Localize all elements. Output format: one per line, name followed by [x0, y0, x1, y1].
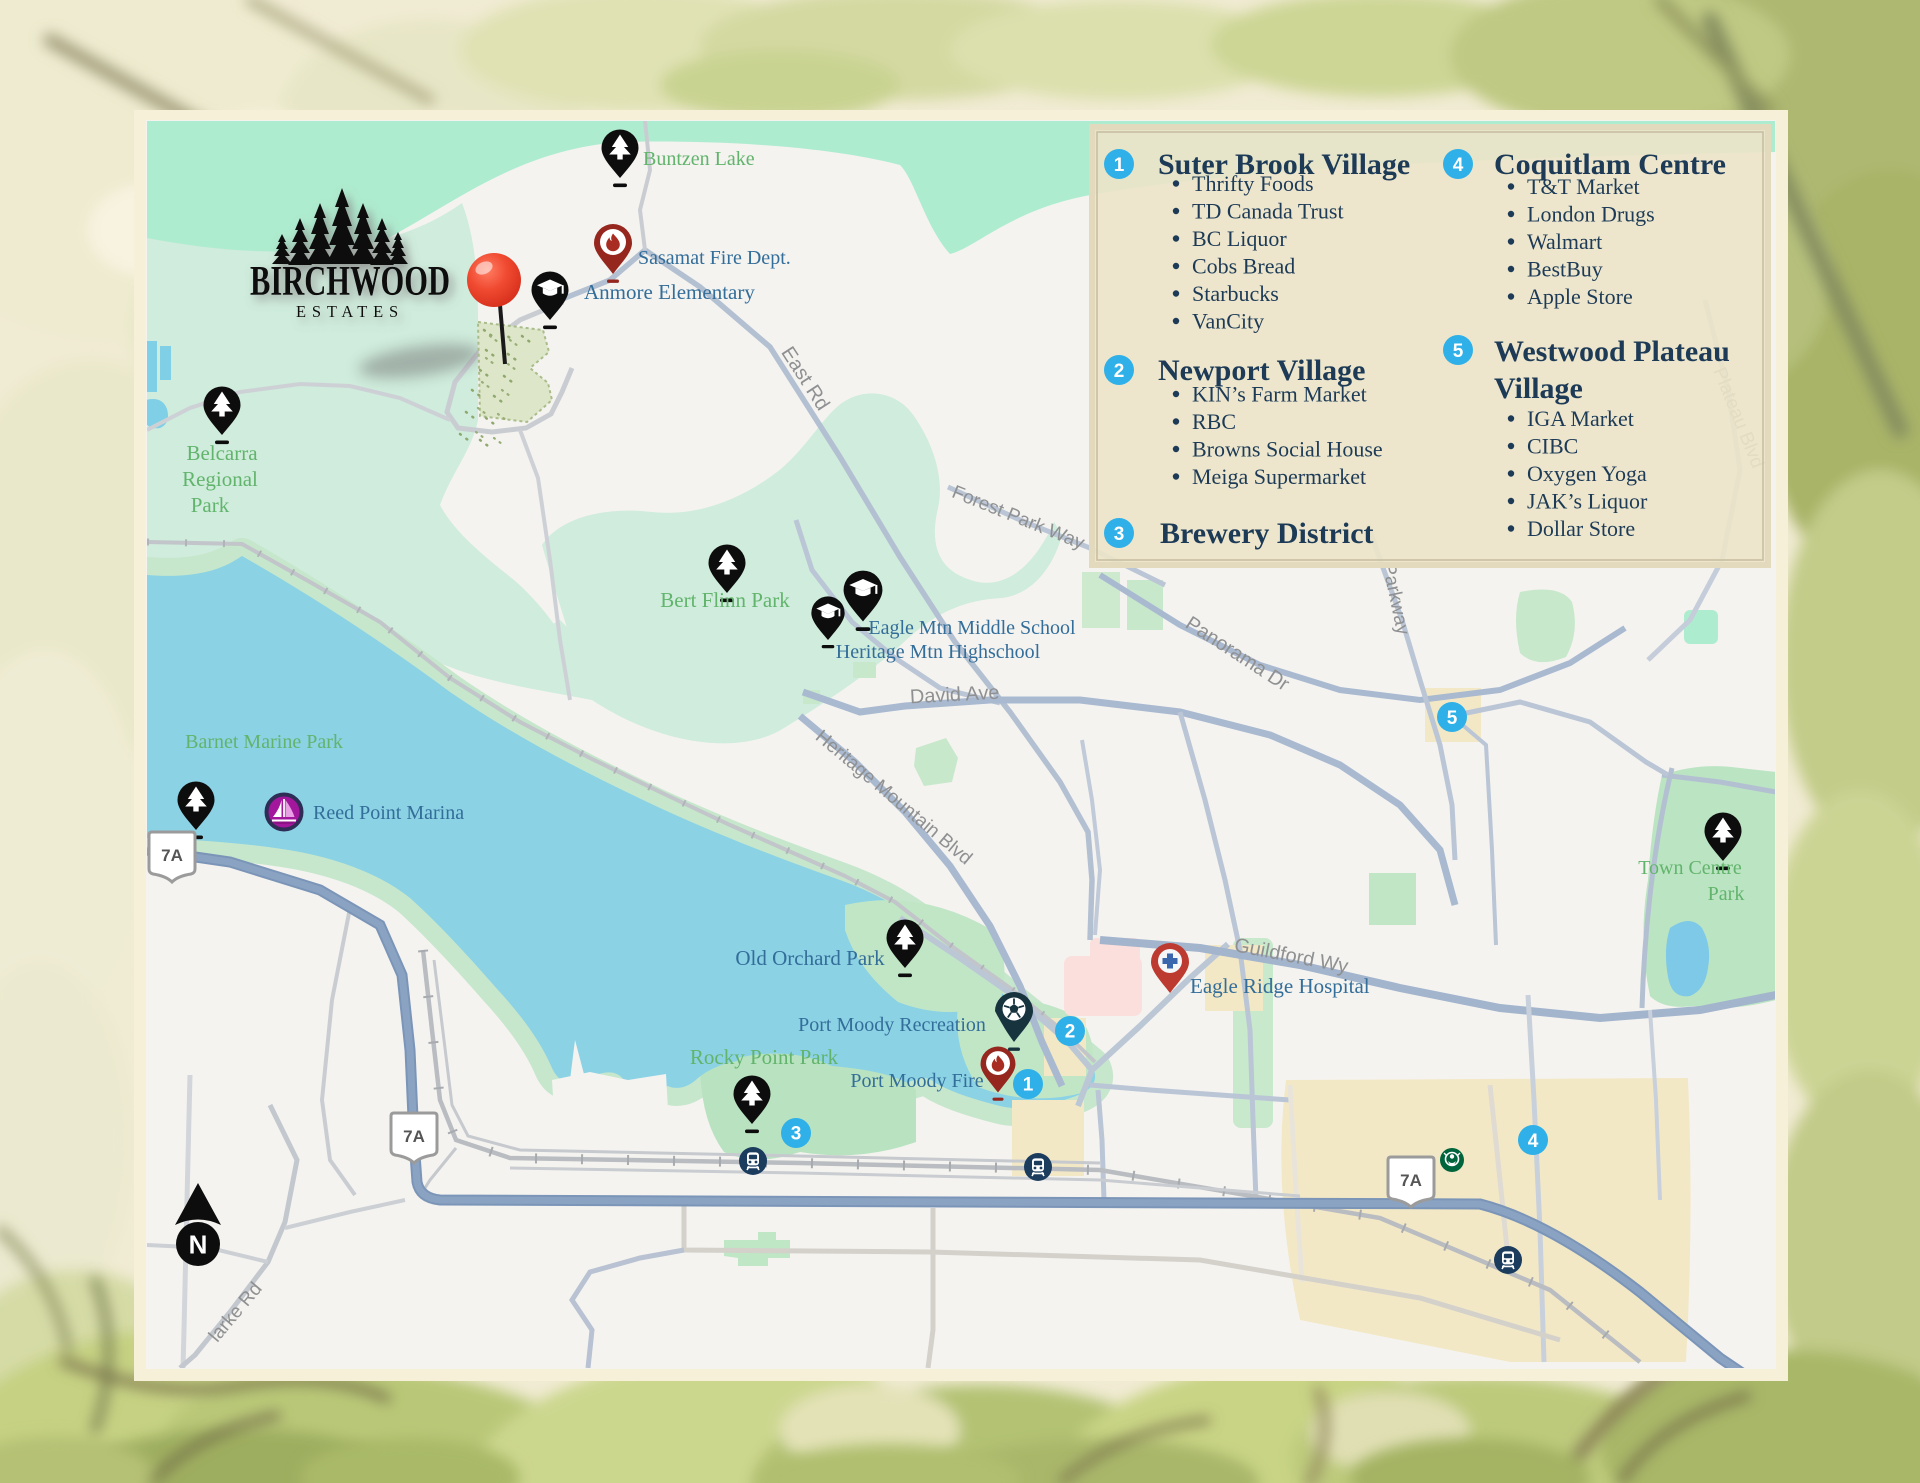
svg-text:JAK’s Liquor: JAK’s Liquor: [1527, 489, 1648, 514]
svg-text:Buntzen Lake: Buntzen Lake: [643, 148, 755, 170]
svg-text:Port Moody Fire: Port Moody Fire: [850, 1070, 983, 1092]
svg-text:3: 3: [1114, 524, 1125, 545]
svg-text:Eagle Ridge Hospital: Eagle Ridge Hospital: [1190, 974, 1370, 998]
svg-text:Meiga Supermarket: Meiga Supermarket: [1192, 464, 1366, 489]
svg-text:ESTATES: ESTATES: [296, 302, 404, 321]
svg-text:BIRCHWOOD: BIRCHWOOD: [250, 259, 450, 305]
svg-text:CIBC: CIBC: [1527, 434, 1578, 459]
svg-text:Bert Flinn Park: Bert Flinn Park: [660, 588, 790, 612]
svg-text:Old Orchard Park: Old Orchard Park: [735, 946, 885, 970]
svg-text:Sasamat Fire Dept.: Sasamat Fire Dept.: [638, 247, 791, 269]
svg-text:Oxygen Yoga: Oxygen Yoga: [1527, 461, 1647, 486]
svg-text:Port Moody Recreation: Port Moody Recreation: [798, 1014, 986, 1036]
svg-text:KIN’s Farm Market: KIN’s Farm Market: [1192, 382, 1367, 407]
svg-text:Park: Park: [1708, 883, 1745, 905]
svg-text:Browns Social House: Browns Social House: [1192, 437, 1383, 462]
svg-text:Walmart: Walmart: [1527, 229, 1602, 254]
svg-text:VanCity: VanCity: [1192, 309, 1264, 334]
svg-text:Park: Park: [191, 493, 230, 517]
svg-text:TD Canada Trust: TD Canada Trust: [1192, 199, 1344, 224]
svg-text:2: 2: [1114, 361, 1125, 382]
svg-text:5: 5: [1447, 708, 1458, 729]
svg-text:1: 1: [1023, 1075, 1034, 1096]
svg-text:Thrifty Foods: Thrifty Foods: [1192, 171, 1314, 196]
svg-text:Apple Store: Apple Store: [1527, 284, 1633, 309]
svg-text:IGA Market: IGA Market: [1527, 406, 1634, 431]
svg-text:Reed Point Marina: Reed Point Marina: [313, 802, 464, 824]
svg-text:London Drugs: London Drugs: [1527, 202, 1655, 227]
svg-text:Brewery District: Brewery District: [1160, 517, 1374, 550]
svg-text:5: 5: [1453, 341, 1464, 362]
svg-text:Anmore Elementary: Anmore Elementary: [584, 280, 755, 304]
svg-text:2: 2: [1065, 1022, 1076, 1043]
svg-text:Regional: Regional: [182, 467, 258, 491]
svg-text:Eagle Mtn Middle School: Eagle Mtn Middle School: [868, 617, 1076, 639]
svg-text:Belcarra: Belcarra: [186, 441, 258, 465]
svg-text:Dollar Store: Dollar Store: [1527, 516, 1635, 541]
svg-text:David Ave: David Ave: [909, 682, 1000, 709]
svg-text:3: 3: [791, 1124, 802, 1145]
svg-text:4: 4: [1453, 155, 1464, 176]
svg-text:Rocky Point Park: Rocky Point Park: [690, 1045, 839, 1069]
svg-text:Starbucks: Starbucks: [1192, 281, 1279, 306]
svg-text:N: N: [189, 1230, 208, 1260]
svg-text:1: 1: [1114, 155, 1125, 176]
svg-text:Barnet Marine Park: Barnet Marine Park: [185, 731, 343, 753]
svg-text:Cobs Bread: Cobs Bread: [1192, 254, 1295, 279]
svg-text:Westwood Plateau: Westwood Plateau: [1494, 335, 1730, 368]
svg-text:Heritage Mtn Highschool: Heritage Mtn Highschool: [836, 641, 1041, 663]
svg-text:Village: Village: [1494, 372, 1583, 405]
svg-text:BC Liquor: BC Liquor: [1192, 226, 1287, 251]
svg-text:T&T Market: T&T Market: [1527, 174, 1640, 199]
svg-text:Town Centre: Town Centre: [1638, 857, 1742, 879]
svg-text:RBC: RBC: [1192, 409, 1236, 434]
svg-text:BestBuy: BestBuy: [1527, 257, 1603, 282]
svg-text:4: 4: [1528, 1131, 1539, 1152]
